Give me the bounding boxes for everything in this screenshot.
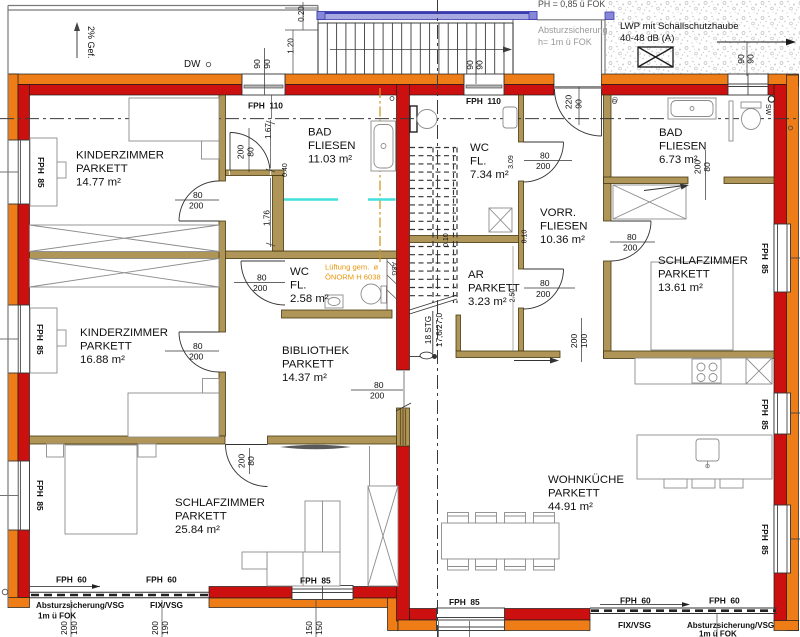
svg-text:LWP mit Schallschutzhaube: LWP mit Schallschutzhaube: [620, 21, 739, 32]
svg-text:44.91 m²: 44.91 m²: [548, 501, 593, 513]
svg-text:80: 80: [627, 232, 637, 242]
svg-text:80: 80: [193, 341, 203, 351]
svg-text:FLIESEN: FLIESEN: [659, 141, 706, 153]
svg-text:200: 200: [60, 621, 69, 635]
svg-text:FLIESEN: FLIESEN: [540, 221, 587, 233]
svg-text:200: 200: [569, 334, 579, 349]
svg-text:FPH 85: FPH 85: [760, 524, 770, 555]
svg-text:FPH 85: FPH 85: [760, 399, 770, 430]
svg-text:ÖNORM H 6038: ÖNORM H 6038: [325, 273, 381, 282]
svg-text:80: 80: [540, 278, 550, 288]
svg-text:PARKETT: PARKETT: [175, 511, 227, 523]
svg-text:PH = 0,85 ü FOK: PH = 0,85 ü FOK: [538, 0, 605, 9]
svg-text:150: 150: [305, 621, 314, 635]
svg-text:PARKETT: PARKETT: [658, 269, 710, 281]
svg-text:1m ü FOK: 1m ü FOK: [699, 630, 737, 637]
svg-text:0.40: 0.40: [282, 163, 289, 177]
svg-text:WOHNKÜCHE: WOHNKÜCHE: [548, 474, 624, 486]
svg-text:90: 90: [746, 54, 756, 64]
svg-text:80: 80: [246, 456, 256, 466]
svg-text:FLIESEN: FLIESEN: [308, 140, 355, 152]
svg-text:13.61 m²: 13.61 m²: [658, 282, 703, 294]
svg-text:SW: SW: [764, 104, 771, 116]
svg-text:FPH 60: FPH 60: [709, 596, 740, 606]
svg-text:200: 200: [189, 201, 204, 211]
svg-text:FIX/VSG: FIX/VSG: [618, 620, 651, 630]
svg-text:90: 90: [736, 54, 746, 64]
svg-text:FIX/VSG: FIX/VSG: [150, 600, 183, 610]
svg-text:2.50: 2.50: [510, 289, 517, 303]
svg-text:80: 80: [702, 162, 712, 172]
svg-text:ASG: ASG: [390, 262, 397, 276]
svg-text:FPH 85: FPH 85: [35, 324, 45, 355]
svg-text:200: 200: [370, 391, 385, 401]
svg-text:190: 190: [70, 621, 79, 635]
svg-text:KINDERZIMMER: KINDERZIMMER: [76, 150, 164, 162]
svg-text:3.09: 3.09: [508, 155, 515, 169]
svg-text:FPH 110: FPH 110: [248, 101, 283, 111]
svg-text:14.77 m²: 14.77 m²: [76, 177, 121, 189]
svg-text:Absturzsicherung: Absturzsicherung: [538, 25, 608, 35]
svg-text:190: 190: [161, 621, 170, 635]
svg-text:BAD: BAD: [308, 127, 331, 139]
svg-text:200: 200: [253, 283, 268, 293]
svg-text:200: 200: [536, 161, 551, 171]
svg-text:3.23 m²: 3.23 m²: [468, 296, 507, 308]
svg-text:200: 200: [693, 160, 703, 175]
svg-text:90: 90: [475, 60, 485, 70]
svg-text:0.10: 0.10: [522, 230, 529, 244]
svg-text:14.37 m²: 14.37 m²: [282, 372, 327, 384]
svg-text:90: 90: [262, 59, 272, 69]
svg-text:80: 80: [246, 147, 256, 157]
svg-text:2% Gef.: 2% Gef.: [86, 26, 96, 59]
svg-text:FPH 110: FPH 110: [466, 96, 501, 106]
svg-text:150: 150: [315, 621, 324, 635]
svg-text:200: 200: [536, 289, 551, 299]
svg-text:200: 200: [189, 352, 204, 362]
svg-text:WC: WC: [470, 142, 489, 154]
svg-text:DW: DW: [184, 59, 201, 70]
svg-text:80: 80: [257, 273, 267, 283]
svg-text:17,6/27,0: 17,6/27,0: [435, 312, 444, 347]
svg-text:PARKETT: PARKETT: [548, 488, 600, 500]
svg-text:80: 80: [193, 190, 203, 200]
svg-text:Lüftung gem. ø: Lüftung gem. ø: [325, 263, 379, 272]
svg-text:WC: WC: [290, 266, 309, 278]
svg-text:Absturzsicherung/VSG: Absturzsicherung/VSG: [36, 601, 124, 610]
svg-text:BAD: BAD: [659, 127, 682, 139]
svg-text:0.10: 0.10: [443, 233, 450, 247]
svg-text:18 STG: 18 STG: [424, 316, 433, 344]
svg-text:KINDERZIMMER: KINDERZIMMER: [80, 327, 168, 339]
svg-text:220: 220: [564, 95, 574, 110]
svg-text:FPH 60: FPH 60: [146, 575, 177, 585]
svg-text:80: 80: [540, 151, 550, 161]
svg-text:10.36 m²: 10.36 m²: [540, 234, 585, 246]
svg-text:FL.: FL.: [290, 280, 306, 292]
svg-text:200: 200: [623, 243, 638, 253]
svg-text:200: 200: [236, 145, 246, 160]
svg-text:90: 90: [574, 99, 584, 109]
svg-text:90: 90: [465, 60, 475, 70]
svg-text:40-48 dB (A): 40-48 dB (A): [620, 33, 674, 44]
svg-text:PARKETT: PARKETT: [80, 341, 132, 353]
svg-text:PARKETT: PARKETT: [76, 163, 128, 175]
svg-text:SCHLAFZIMMER: SCHLAFZIMMER: [175, 497, 265, 509]
svg-text:200: 200: [151, 621, 160, 635]
svg-text:FPH 85: FPH 85: [35, 480, 45, 511]
svg-text:2.58 m²: 2.58 m²: [290, 293, 329, 305]
svg-text:1m ü FOK: 1m ü FOK: [38, 612, 76, 621]
svg-text:FPH 60: FPH 60: [620, 596, 651, 606]
svg-text:FPH 85: FPH 85: [760, 243, 770, 274]
svg-text:FPH 60: FPH 60: [56, 575, 87, 585]
svg-text:BIBLIOTHEK: BIBLIOTHEK: [282, 345, 350, 357]
svg-text:h= 1m ü FOK: h= 1m ü FOK: [538, 37, 592, 47]
svg-text:1.20: 1.20: [287, 38, 296, 54]
svg-text:VORR.: VORR.: [540, 207, 576, 219]
svg-text:80: 80: [374, 380, 384, 390]
svg-text:FL.: FL.: [470, 156, 486, 168]
svg-text:16.88 m²: 16.88 m²: [80, 354, 125, 366]
svg-text:100: 100: [579, 334, 589, 349]
svg-text:FPH 85: FPH 85: [36, 157, 46, 188]
svg-text:FPH 85: FPH 85: [300, 576, 331, 586]
svg-text:PARKETT: PARKETT: [282, 359, 334, 371]
svg-text:200: 200: [237, 454, 247, 469]
svg-text:25.84 m²: 25.84 m²: [175, 524, 220, 536]
svg-text:7.34 m²: 7.34 m²: [470, 169, 509, 181]
svg-text:11.03 m²: 11.03 m²: [308, 154, 352, 166]
svg-text:AR: AR: [468, 269, 484, 281]
svg-text:FPH 85: FPH 85: [449, 597, 480, 607]
svg-text:SCHLAFZIMMER: SCHLAFZIMMER: [658, 255, 748, 267]
svg-text:1.67: 1.67: [264, 123, 273, 139]
svg-text:90: 90: [252, 59, 262, 69]
